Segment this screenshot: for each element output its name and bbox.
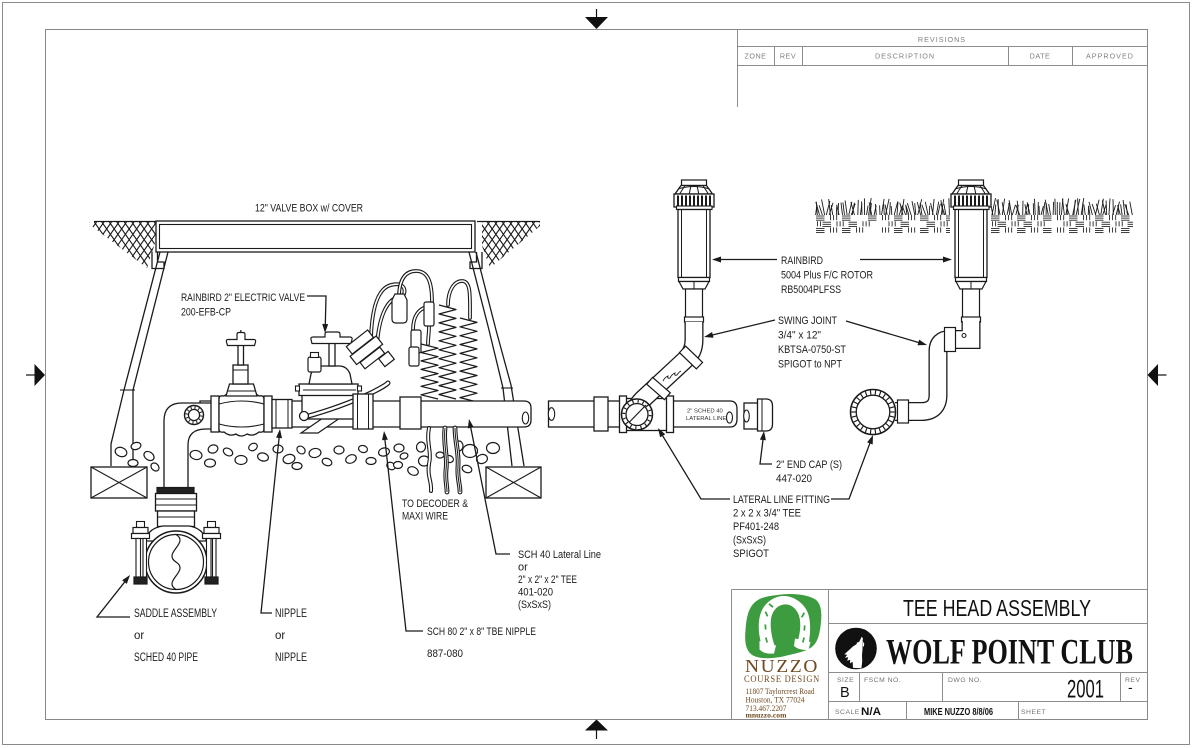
svg-text:SHEET: SHEET [1021, 709, 1046, 716]
svg-text:RAINBIRD 2" ELECTRIC VALVE: RAINBIRD 2" ELECTRIC VALVE [181, 292, 305, 304]
svg-text:N/A: N/A [861, 706, 881, 718]
svg-text:SPIGOT: SPIGOT [733, 548, 769, 560]
svg-text:NIPPLE: NIPPLE [275, 608, 307, 620]
svg-text:WOLF POINT CLUB: WOLF POINT CLUB [886, 632, 1133, 672]
svg-text:-: - [1128, 679, 1133, 695]
svg-text:SCH 80 2" x 8" TBE NIPPLE: SCH 80 2" x 8" TBE NIPPLE [427, 626, 536, 638]
svg-text:REVISIONS: REVISIONS [918, 35, 966, 44]
svg-text:447-020: 447-020 [776, 473, 812, 485]
svg-text:REV: REV [780, 52, 796, 61]
svg-text:MIKE NUZZO 8/8/06: MIKE NUZZO 8/8/06 [924, 706, 993, 718]
svg-text:TO DECODER &: TO DECODER & [402, 498, 469, 510]
svg-text:KBTSA-0750-ST: KBTSA-0750-ST [778, 344, 846, 356]
svg-text:COURSE DESIGN: COURSE DESIGN [744, 675, 820, 685]
svg-text:LATERAL LINE FITTING: LATERAL LINE FITTING [733, 494, 830, 506]
svg-text:or: or [275, 630, 285, 642]
svg-text:RAINBIRD: RAINBIRD [781, 255, 823, 267]
svg-text:DESCRIPTION: DESCRIPTION [875, 52, 935, 61]
svg-text:887-080: 887-080 [427, 648, 463, 660]
svg-text:2" x 2" x 2" TEE: 2" x 2" x 2" TEE [518, 574, 577, 586]
svg-text:NUZZO: NUZZO [745, 656, 819, 676]
svg-text:2 x 2 x 3/4" TEE: 2 x 2 x 3/4" TEE [733, 508, 801, 520]
svg-text:or: or [134, 630, 144, 642]
svg-text:FSCM NO.: FSCM NO. [864, 677, 901, 684]
svg-text:ZONE: ZONE [745, 52, 767, 61]
svg-text:SIZE: SIZE [837, 677, 854, 684]
svg-text:MAXI WIRE: MAXI WIRE [402, 511, 448, 523]
svg-text:401-020: 401-020 [518, 587, 553, 599]
svg-text:SCALE: SCALE [835, 709, 860, 716]
svg-text:PF401-248: PF401-248 [733, 521, 779, 533]
svg-text:3/4" x 12": 3/4" x 12" [778, 330, 821, 342]
svg-text:DWG NO.: DWG NO. [948, 677, 982, 684]
svg-text:TEE HEAD ASSEMBLY: TEE HEAD ASSEMBLY [903, 595, 1091, 621]
svg-text:SCHED 40 PIPE: SCHED 40 PIPE [134, 652, 198, 664]
svg-text:APPROVED: APPROVED [1086, 52, 1134, 61]
svg-text:(SxSxS): (SxSxS) [733, 535, 766, 547]
svg-text:DATE: DATE [1030, 52, 1051, 61]
svg-text:2" END CAP (S): 2" END CAP (S) [776, 459, 842, 471]
svg-text:200-EFB-CP: 200-EFB-CP [181, 307, 231, 319]
svg-text:2001: 2001 [1067, 676, 1104, 704]
svg-text:RB5004PLFSS: RB5004PLFSS [781, 284, 841, 296]
svg-text:SADDLE ASSEMBLY: SADDLE ASSEMBLY [134, 608, 217, 620]
svg-text:(SxSxS): (SxSxS) [518, 599, 551, 611]
svg-text:2" SCHED 40: 2" SCHED 40 [687, 409, 724, 415]
svg-text:5004 Plus F/C ROTOR: 5004 Plus F/C ROTOR [781, 270, 873, 282]
svg-text:SWING JOINT: SWING JOINT [778, 315, 837, 327]
svg-text:B: B [840, 685, 850, 701]
svg-text:NIPPLE: NIPPLE [275, 652, 307, 664]
svg-text:mnuzzo.com: mnuzzo.com [746, 711, 787, 720]
svg-text:or: or [518, 562, 528, 574]
svg-text:SCH 40 Lateral Line: SCH 40 Lateral Line [518, 549, 601, 561]
svg-text:LATERAL LINE: LATERAL LINE [686, 416, 726, 422]
svg-text:SPIGOT to NPT: SPIGOT to NPT [778, 359, 842, 371]
svg-text:12" VALVE BOX w/ COVER: 12" VALVE BOX w/ COVER [255, 203, 363, 215]
